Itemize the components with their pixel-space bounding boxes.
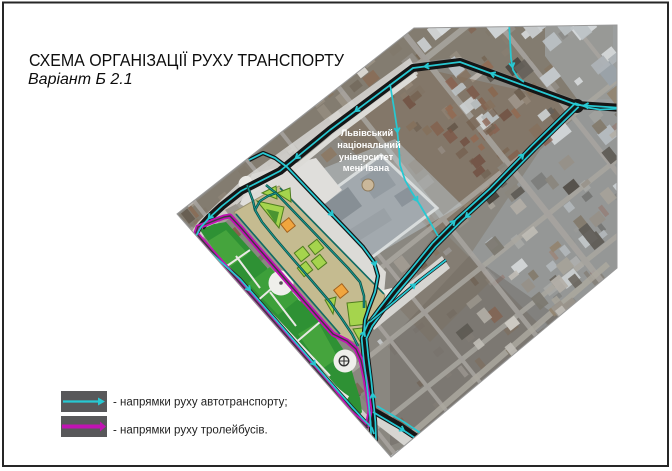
svg-text:- напрямки руху автотранспорту: - напрямки руху автотранспорту; bbox=[113, 397, 288, 409]
svg-text:мені Івана: мені Івана bbox=[343, 163, 390, 173]
svg-text:Варіант Б 2.1: Варіант Б 2.1 bbox=[28, 71, 133, 88]
svg-text:СХЕМА ОРГАНІЗАЦІЇ РУХУ ТРАНСПО: СХЕМА ОРГАНІЗАЦІЇ РУХУ ТРАНСПОРТУ bbox=[29, 50, 344, 70]
svg-text:- напрямки руху тролейбусів.: - напрямки руху тролейбусів. bbox=[113, 425, 268, 437]
svg-text:університет: університет bbox=[339, 152, 394, 162]
svg-text:Львівський: Львівський bbox=[341, 128, 394, 138]
svg-text:національний: національний bbox=[337, 140, 401, 150]
